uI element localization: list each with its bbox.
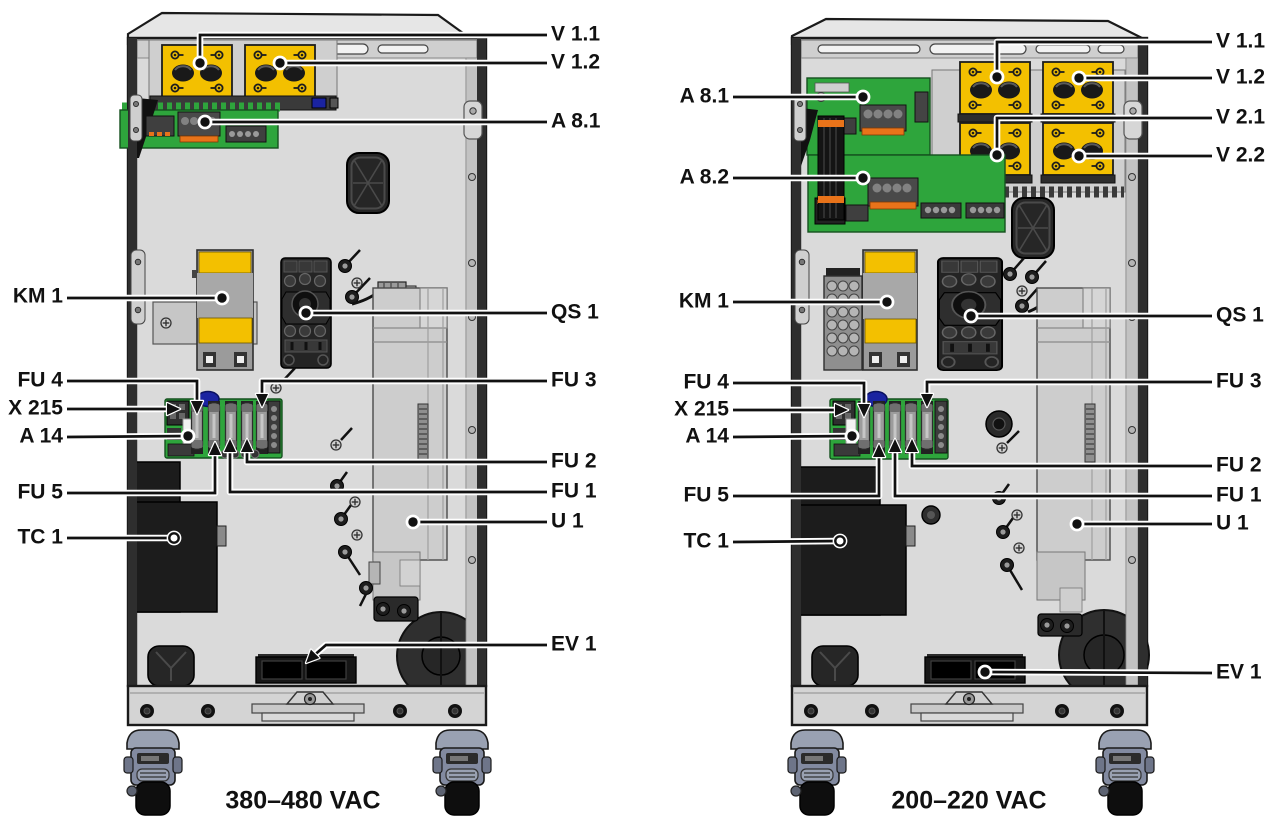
fuse-fu1 xyxy=(889,401,901,454)
callout-left-tc-1: TC 1 xyxy=(17,527,63,548)
fuse-fu4 xyxy=(858,401,870,454)
fuse-board xyxy=(830,392,948,460)
cable-grommet xyxy=(812,646,858,686)
contactor-km1 xyxy=(824,250,917,370)
callout-right-fu-5: FU 5 xyxy=(683,485,729,506)
callout-left-x-215: X 215 xyxy=(8,398,63,419)
power-module-v1-1 xyxy=(958,62,1032,122)
cabinet-artwork xyxy=(0,0,1280,832)
base-bolt xyxy=(1110,704,1124,718)
callout-right-fu-3: FU 3 xyxy=(1216,371,1262,392)
cabinet-base xyxy=(128,686,486,725)
callout-right-a-8.2: A 8.2 xyxy=(680,167,729,188)
caster-front-right xyxy=(433,730,491,815)
power-module-v2-2 xyxy=(1041,123,1115,183)
callout-right-ev-1: EV 1 xyxy=(1216,662,1262,683)
power-module-v1-2 xyxy=(1041,62,1115,122)
cable-grommet xyxy=(148,646,194,686)
callout-right-qs-1: QS 1 xyxy=(1216,305,1264,326)
callout-left-a-8.1: A 8.1 xyxy=(551,111,600,132)
callout-left-qs-1: QS 1 xyxy=(551,302,599,323)
caption-left-cabinet: 380–480 VAC xyxy=(225,787,380,816)
callout-left-a-14: A 14 xyxy=(19,426,63,447)
panel-screw-washer xyxy=(922,506,940,524)
right-inner-strip xyxy=(466,58,478,686)
base-bolt xyxy=(804,704,818,718)
callout-right-u-1: U 1 xyxy=(1216,513,1249,534)
cabinet-base xyxy=(792,686,1147,725)
callout-left-fu-2: FU 2 xyxy=(551,451,597,472)
caption-right-cabinet: 200–220 VAC xyxy=(891,787,1046,816)
callout-right-v-1.1: V 1.1 xyxy=(1216,31,1265,52)
pin-strip xyxy=(1085,404,1095,462)
callout-right-fu-1: FU 1 xyxy=(1216,485,1262,506)
right-inner-strip xyxy=(1126,58,1138,686)
cabinet-200-220-vac xyxy=(788,19,1154,815)
figure-canvas: V 1.1V 1.2A 8.1QS 1FU 3FU 2FU 1U 1EV 1KM… xyxy=(0,0,1280,832)
caster-front-right xyxy=(1096,730,1154,815)
fan-ev1 xyxy=(256,654,356,683)
callout-left-v-1.1: V 1.1 xyxy=(551,24,600,45)
base-bolt xyxy=(140,704,154,718)
fuse-fu1 xyxy=(225,401,237,454)
callout-left-v-1.2: V 1.2 xyxy=(551,52,600,73)
base-bolt xyxy=(1055,704,1069,718)
cabinet-380-480-vac xyxy=(120,13,491,815)
base-bolt xyxy=(201,704,215,718)
callout-right-a-8.1: A 8.1 xyxy=(680,86,729,107)
callout-left-fu-4: FU 4 xyxy=(17,370,63,391)
callout-right-tc-1: TC 1 xyxy=(683,531,729,552)
caster-front-left xyxy=(788,730,846,815)
callout-right-fu-4: FU 4 xyxy=(683,372,729,393)
callout-left-fu-5: FU 5 xyxy=(17,482,63,503)
callout-left-u-1: U 1 xyxy=(551,511,584,532)
callout-left-fu-1: FU 1 xyxy=(551,481,597,502)
fuse-fu3 xyxy=(921,401,933,454)
fan-ev1 xyxy=(925,654,1025,683)
fuse-fu5 xyxy=(208,401,220,454)
callout-right-v-1.2: V 1.2 xyxy=(1216,67,1265,88)
callout-right-a-14: A 14 xyxy=(685,426,729,447)
switch-qs1 xyxy=(938,258,1002,370)
fuse-board xyxy=(165,392,282,459)
callout-right-v-2.2: V 2.2 xyxy=(1216,145,1265,166)
callout-left-km-1: KM 1 xyxy=(13,286,63,307)
fuse-fu3 xyxy=(256,401,268,454)
fuse-fu4 xyxy=(191,401,203,454)
pin-strip xyxy=(418,404,428,462)
handle-grommet xyxy=(1012,198,1054,258)
callout-right-fu-2: FU 2 xyxy=(1216,455,1262,476)
caster-front-left xyxy=(124,730,182,815)
fuse-fu2 xyxy=(241,401,253,454)
vent-slots xyxy=(818,44,1124,54)
callout-right-km-1: KM 1 xyxy=(679,291,729,312)
handle-grommet xyxy=(347,153,389,213)
switch-qs1 xyxy=(281,258,331,368)
callout-right-v-2.1: V 2.1 xyxy=(1216,107,1265,128)
base-bolt xyxy=(865,704,879,718)
base-bolt xyxy=(393,704,407,718)
callout-left-fu-3: FU 3 xyxy=(551,370,597,391)
callout-left-ev-1: EV 1 xyxy=(551,634,597,655)
fuse-fu5 xyxy=(873,401,885,454)
callout-right-x-215: X 215 xyxy=(674,399,729,420)
fuse-fu2 xyxy=(905,401,917,454)
base-bolt xyxy=(448,704,462,718)
